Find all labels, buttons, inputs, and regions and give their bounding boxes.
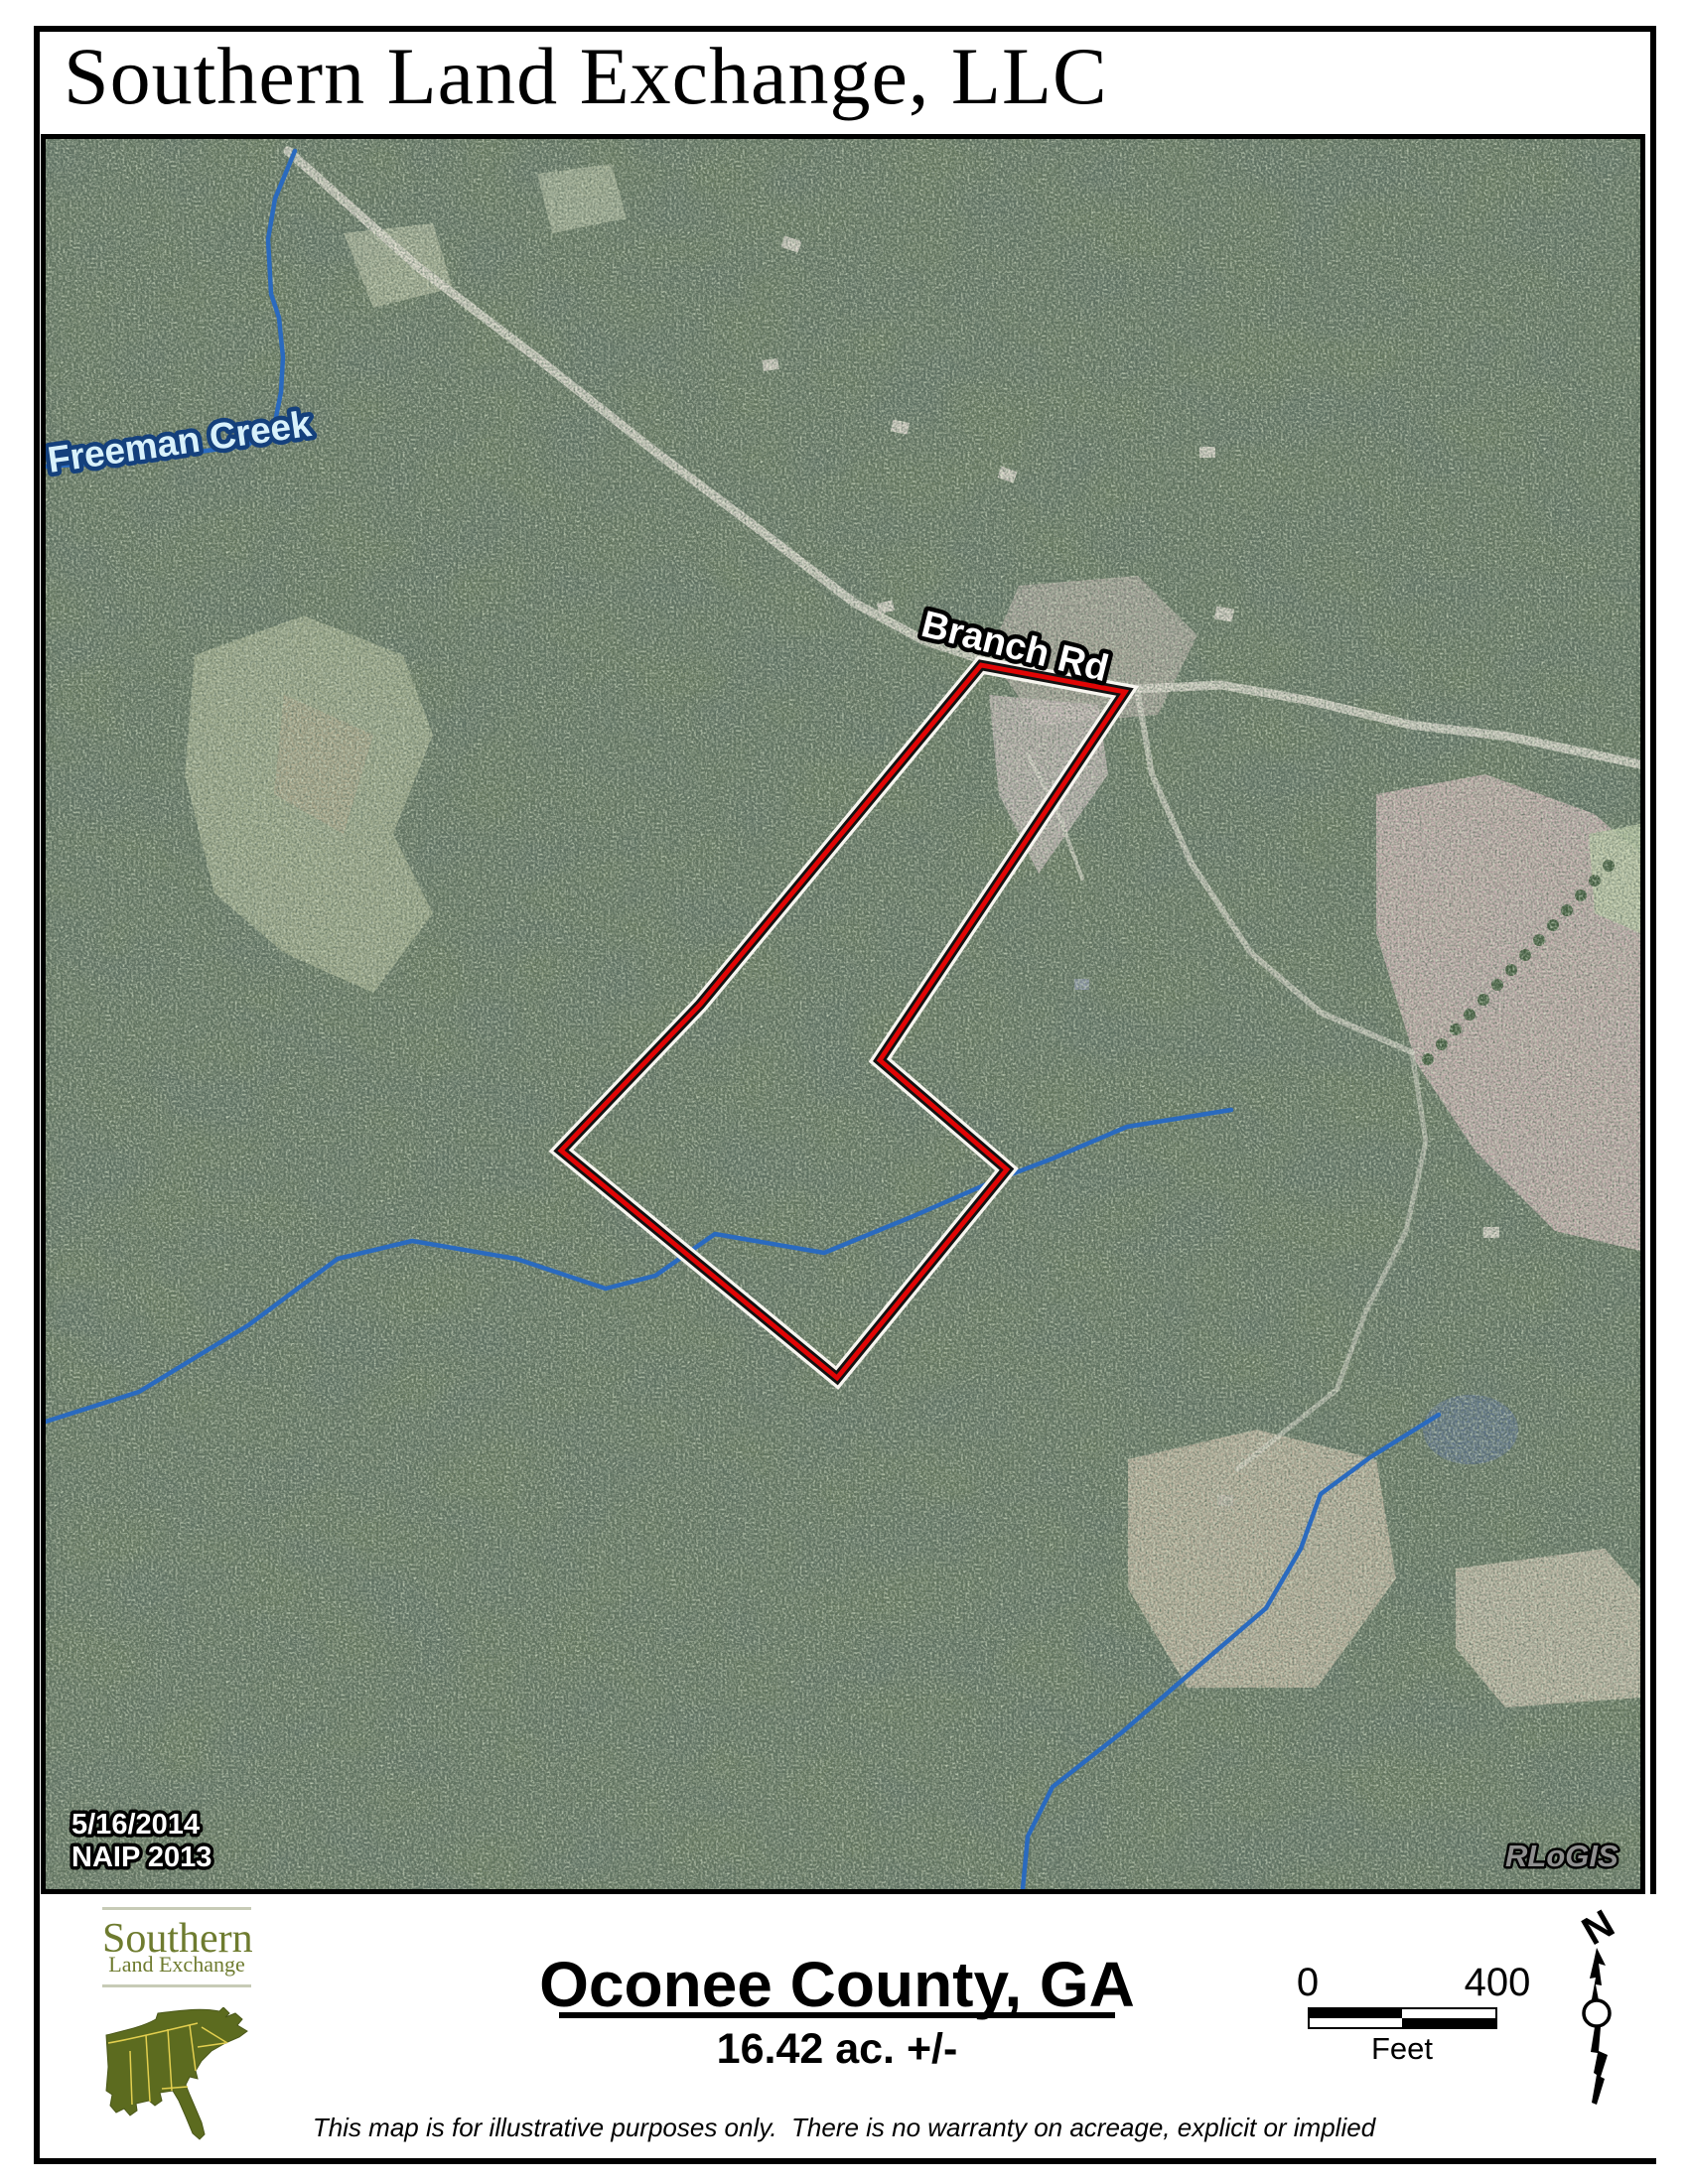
scalebar-start-label: 0 bbox=[1288, 1961, 1328, 2005]
gis-credit-label: RLoGIS bbox=[1505, 1839, 1618, 1873]
acreage-label: 16.42 ac. +/- bbox=[440, 2025, 1234, 2074]
company-title: Southern Land Exchange, LLC bbox=[64, 30, 1108, 123]
map-document-page: Southern Land Exchange, LLC bbox=[0, 0, 1688, 2184]
aerial-map: Freeman Creek Branch Rd 5/16/2014 NAIP 2… bbox=[46, 139, 1640, 1889]
county-title: Oconee County, GA bbox=[440, 1948, 1234, 2021]
imagery-date-line2: NAIP 2013 bbox=[71, 1842, 211, 1873]
scalebar-end-label: 400 bbox=[1458, 1961, 1537, 2005]
scalebar-unit-label: Feet bbox=[1328, 2031, 1477, 2067]
aerial-map-frame: Freeman Creek Branch Rd 5/16/2014 NAIP 2… bbox=[41, 134, 1645, 1894]
scale-bar bbox=[1308, 2007, 1497, 2029]
north-arrow: N bbox=[1567, 1904, 1630, 2113]
forest-speckle-light bbox=[46, 139, 1640, 1889]
logo-southeast-us-map bbox=[102, 2007, 253, 2142]
imagery-date-line1: 5/16/2014 bbox=[71, 1809, 200, 1841]
disclaimer-text: This map is for illustrative purposes on… bbox=[248, 2113, 1440, 2143]
county-title-underline bbox=[559, 2012, 1115, 2018]
logo-rule-bottom bbox=[102, 1984, 251, 1987]
logo-rule-top bbox=[102, 1907, 251, 1910]
north-arrow-n-label: N bbox=[1575, 1904, 1621, 1954]
logo-text-land-exchange: Land Exchange bbox=[97, 1952, 256, 1978]
